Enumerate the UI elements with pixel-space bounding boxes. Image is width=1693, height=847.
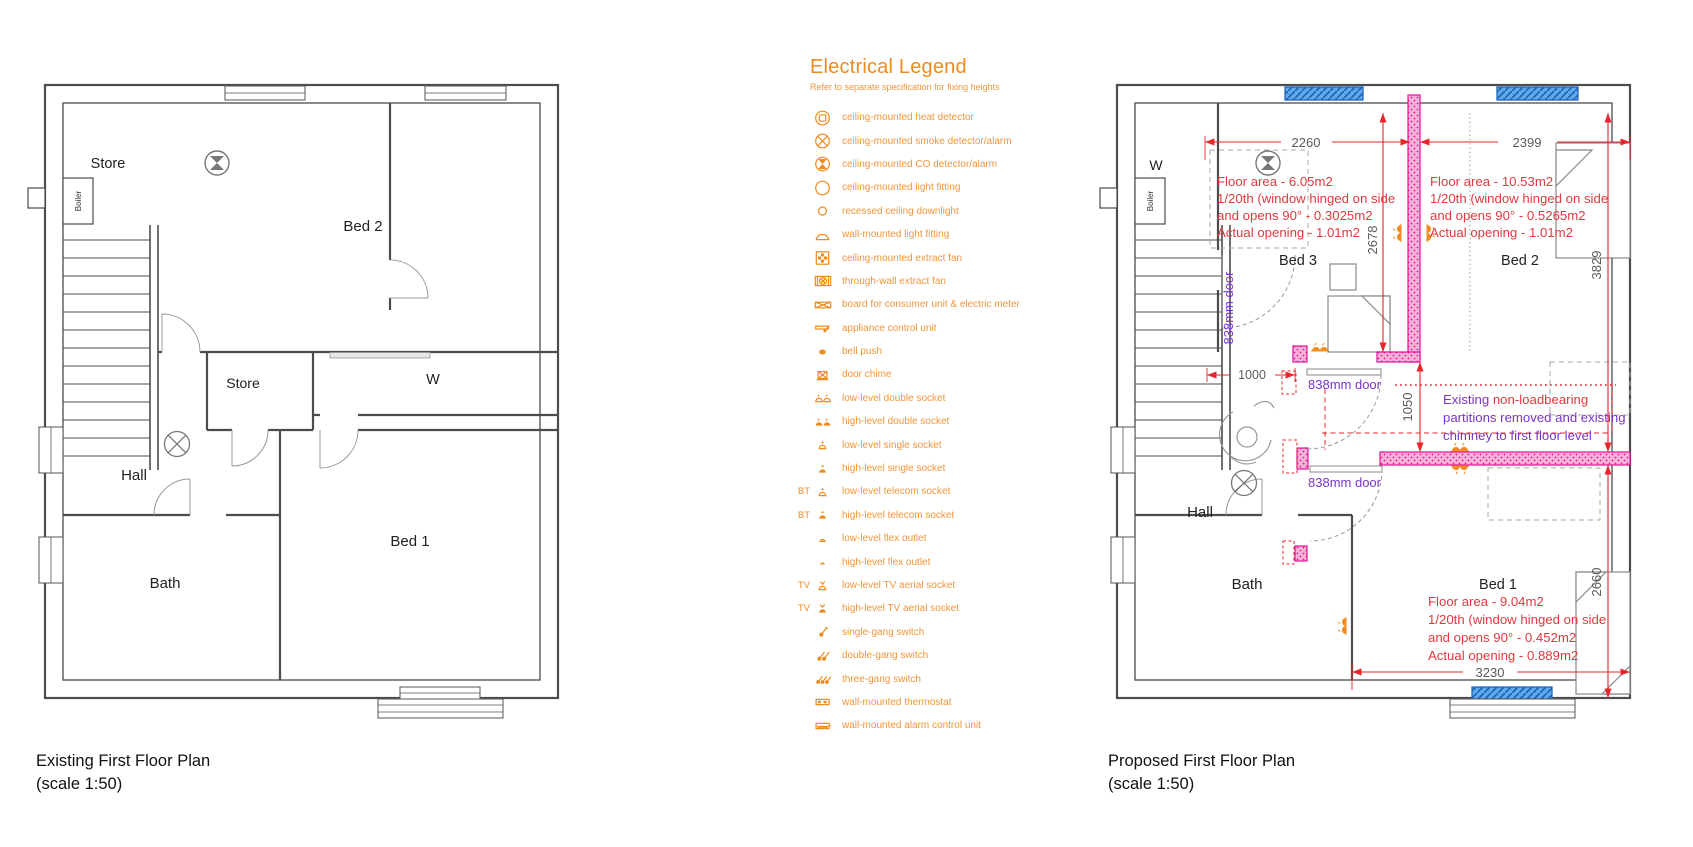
bed3-note-line: and opens 90° - 0.3025m2: [1217, 208, 1373, 223]
partition-note: Existing non-loadbearing partitions remo…: [1443, 392, 1626, 443]
staircase: [1135, 225, 1230, 470]
dim-3230: 3230: [1476, 665, 1505, 680]
legend-item: door chime: [786, 363, 1086, 386]
high-single-socket-icon: [812, 461, 842, 477]
high-tv-socket-icon: [812, 601, 842, 617]
legend-item-label: high-level telecom socket: [842, 510, 954, 521]
low-flex-outlet-icon: [812, 531, 842, 547]
existing-doors: [154, 260, 428, 515]
bed1-note-line: and opens 90° - 0.452m2: [1428, 630, 1576, 645]
bed1-note-line: 1/20th (window hinged on side: [1428, 612, 1606, 627]
sliding-door: [330, 353, 430, 359]
dim-1000: 1000: [1238, 368, 1266, 382]
boiler-flue: [1100, 188, 1117, 208]
low-tv-socket-icon: [812, 578, 842, 594]
existing-plan-title: Existing First Floor Plan: [36, 752, 210, 770]
legend-item-label: low-level double socket: [842, 393, 945, 404]
tv-prefix-label: TV: [786, 580, 812, 591]
legend-item: three-gang switch: [786, 667, 1086, 690]
legend-item: high-level single socket: [786, 457, 1086, 480]
room-label-bed1: Bed 1: [390, 533, 429, 550]
legend-item-label: low-level single socket: [842, 440, 942, 451]
partition-note-purple: Existing: [1443, 392, 1493, 407]
legend-item-label: ceiling-mounted CO detector/alarm: [842, 159, 997, 170]
room-label-hall: Hall: [121, 467, 147, 484]
smoke-detector-icon: [812, 133, 842, 149]
wall-light-icon: [812, 227, 842, 243]
appliance-control-unit-icon: [812, 320, 842, 336]
low-single-socket-icon: [812, 437, 842, 453]
legend-item: wall-mounted light fitting: [786, 223, 1086, 246]
room-label-store-top: Store: [91, 156, 126, 172]
thermostat-icon: [812, 694, 842, 710]
bed3-note-line: Actual opening - 1.01m2: [1217, 225, 1360, 240]
legend-item: BTlow-level telecom socket: [786, 480, 1086, 503]
three-gang-switch-icon: [812, 671, 842, 687]
legend-item-label: low-level TV aerial socket: [842, 580, 955, 591]
legend-item: through-wall extract fan: [786, 270, 1086, 293]
legend-item: wall-mounted thermostat: [786, 691, 1086, 714]
legend-item-label: three-gang switch: [842, 674, 921, 685]
legend-item: recessed ceiling downlight: [786, 200, 1086, 223]
partition-note-line3: chimney to first floor level: [1443, 428, 1592, 443]
legend-item-label: through-wall extract fan: [842, 276, 946, 287]
legend-item-label: appliance control unit: [842, 323, 937, 334]
co-detector-icon: [1256, 151, 1280, 175]
legend-item: low-level double socket: [786, 387, 1086, 410]
legend-item: high-level double socket: [786, 410, 1086, 433]
room-label-store-mid: Store: [226, 375, 260, 391]
staircase: [63, 225, 158, 470]
legend-item-label: single-gang switch: [842, 627, 924, 638]
legend-item: appliance control unit: [786, 317, 1086, 340]
legend-title: Electrical Legend: [786, 56, 1086, 79]
high-telecom-socket-icon: [812, 507, 842, 523]
tv-prefix-label: TV: [786, 603, 812, 614]
legend-item: single-gang switch: [786, 621, 1086, 644]
partition-note-red: non-loadbearing: [1493, 392, 1588, 407]
existing-inner-wall: [63, 103, 540, 680]
legend-item: double-gang switch: [786, 644, 1086, 667]
high-double-socket-icon: [812, 414, 842, 430]
proposed-plan: Boiler: [1100, 85, 1630, 793]
bell-push-icon: [812, 344, 842, 360]
low-telecom-socket-icon: [812, 484, 842, 500]
co-detector-icon: [205, 151, 229, 175]
legend-item-label: ceiling-mounted smoke detector/alarm: [842, 136, 1012, 147]
dim-2660: 2660: [1589, 568, 1604, 597]
legend-item: ceiling-mounted extract fan: [786, 246, 1086, 269]
through-wall-extract-fan-icon: [812, 273, 842, 289]
room-label-bed2: Bed 2: [343, 218, 382, 235]
low-double-socket-icon: [812, 390, 842, 406]
legend-item-label: board for consumer unit & electric meter: [842, 299, 1020, 310]
legend-item-label: recessed ceiling downlight: [842, 206, 959, 217]
room-label-wardrobe: W: [1149, 157, 1163, 173]
person-figure: [1220, 401, 1274, 464]
dim-1050: 1050: [1400, 393, 1415, 422]
bed2-note-line: and opens 90° - 0.5265m2: [1430, 208, 1586, 223]
bed2-note-line: Actual opening - 1.01m2: [1430, 225, 1573, 240]
electrical-legend: Electrical Legend Refer to separate spec…: [786, 56, 1086, 738]
bed2-note-line: Floor area - 10.53m2: [1430, 174, 1553, 189]
existing-outer-wall: [45, 85, 558, 698]
smoke-detector-icon: [165, 432, 190, 457]
legend-item: ceiling-mounted heat detector: [786, 106, 1086, 129]
heat-detector-icon: [812, 110, 842, 126]
legend-item: low-level flex outlet: [786, 527, 1086, 550]
room-label-hall: Hall: [1187, 504, 1213, 521]
drawing-canvas: Boiler Store Bed 2: [0, 0, 1693, 847]
door-label-1: 838mm door: [1221, 271, 1236, 345]
legend-item-label: low-level telecom socket: [842, 486, 950, 497]
legend-item: TVhigh-level TV aerial socket: [786, 597, 1086, 620]
boiler-flue: [28, 188, 45, 208]
legend-item: BThigh-level telecom socket: [786, 504, 1086, 527]
room-label-boiler: Boiler: [74, 190, 83, 211]
svg-text:Existing non-loadbearing: Existing non-loadbearing: [1443, 392, 1588, 407]
light-fitting-icon: [812, 180, 842, 196]
legend-item: ceiling-mounted CO detector/alarm: [786, 153, 1086, 176]
door-markers-red: [1282, 371, 1297, 564]
dim-2399: 2399: [1513, 135, 1542, 150]
ceiling-extract-fan-icon: [812, 250, 842, 266]
room-label-bath: Bath: [150, 575, 181, 592]
dim-2678: 2678: [1365, 226, 1380, 255]
bed2-note-line: 1/20th (window hinged on side: [1430, 191, 1608, 206]
legend-item-label: double-gang switch: [842, 650, 928, 661]
partition-note-line2: partitions removed and existing: [1443, 410, 1626, 425]
legend-item-label: high-level flex outlet: [842, 557, 930, 568]
legend-item-label: ceiling-mounted light fitting: [842, 182, 960, 193]
legend-item: low-level single socket: [786, 433, 1086, 456]
legend-item: board for consumer unit & electric meter: [786, 293, 1086, 316]
single-gang-switch-icon: [812, 624, 842, 640]
existing-plan: Boiler Store Bed 2: [28, 85, 558, 793]
legend-item: high-level flex outlet: [786, 550, 1086, 573]
door-label-3: 838mm door: [1308, 475, 1382, 490]
dim-3829: 3829: [1589, 251, 1604, 280]
legend-item: ceiling-mounted light fitting: [786, 176, 1086, 199]
legend-item-label: high-level double socket: [842, 416, 949, 427]
bt-prefix-label: BT: [786, 510, 812, 521]
dim-2260: 2260: [1292, 135, 1321, 150]
bed1-note-line: Actual opening - 0.889m2: [1428, 648, 1578, 663]
smoke-detector-icon: [1232, 471, 1257, 496]
legend-item: bell push: [786, 340, 1086, 363]
legend-items: ceiling-mounted heat detectorceiling-mou…: [786, 106, 1086, 738]
room-label-bath: Bath: [1232, 576, 1263, 593]
legend-item-label: wall-mounted alarm control unit: [842, 720, 981, 731]
bed1-note-line: Floor area - 9.04m2: [1428, 594, 1544, 609]
legend-item-label: ceiling-mounted heat detector: [842, 112, 974, 123]
room-label-wardrobe: W: [426, 372, 440, 388]
existing-partition-walls: [63, 103, 558, 680]
legend-item-label: high-level TV aerial socket: [842, 603, 959, 614]
legend-item-label: bell push: [842, 346, 882, 357]
room-label-bed1: Bed 1: [1479, 577, 1517, 593]
legend-item: ceiling-mounted smoke detector/alarm: [786, 129, 1086, 152]
legend-subtitle: Refer to separate specification for fixi…: [786, 82, 1086, 92]
legend-item-label: high-level single socket: [842, 463, 945, 474]
proposed-plan-title: Proposed First Floor Plan: [1108, 752, 1295, 770]
legend-item-label: ceiling-mounted extract fan: [842, 253, 962, 264]
room-label-boiler: Boiler: [1146, 190, 1155, 211]
legend-item-label: wall-mounted thermostat: [842, 697, 952, 708]
bed3-note-line: 1/20th (window hinged on side: [1217, 191, 1395, 206]
legend-item: wall-mounted alarm control unit: [786, 714, 1086, 737]
double-gang-switch-icon: [812, 648, 842, 664]
door-chime-icon: [812, 367, 842, 383]
legend-item-label: door chime: [842, 369, 891, 380]
alarm-control-unit-icon: [812, 718, 842, 734]
consumer-board-icon: [812, 297, 842, 313]
room-label-bed2: Bed 2: [1501, 253, 1539, 269]
downlight-icon: [812, 203, 842, 219]
legend-item: TVlow-level TV aerial socket: [786, 574, 1086, 597]
room-label-bed3: Bed 3: [1279, 253, 1317, 269]
door-label-2: 838mm door: [1308, 377, 1382, 392]
co-detector-icon: [812, 156, 842, 172]
legend-item-label: wall-mounted light fitting: [842, 229, 949, 240]
bt-prefix-label: BT: [786, 486, 812, 497]
high-flex-outlet-icon: [812, 554, 842, 570]
bed3-note-line: Floor area - 6.05m2: [1217, 174, 1333, 189]
proposed-plan-scale: (scale 1:50): [1108, 775, 1194, 793]
legend-item-label: low-level flex outlet: [842, 533, 926, 544]
existing-plan-scale: (scale 1:50): [36, 775, 122, 793]
